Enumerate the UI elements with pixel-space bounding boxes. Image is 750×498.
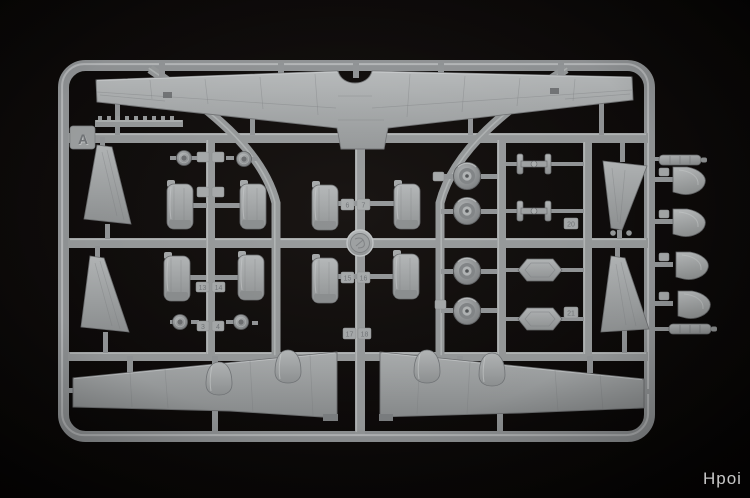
watermark-text: Hpoi: [703, 469, 742, 488]
model-kit-sprue-photo: 13 14 3 4 6 7 15 16: [0, 0, 750, 498]
photo-vignette: [0, 0, 750, 498]
